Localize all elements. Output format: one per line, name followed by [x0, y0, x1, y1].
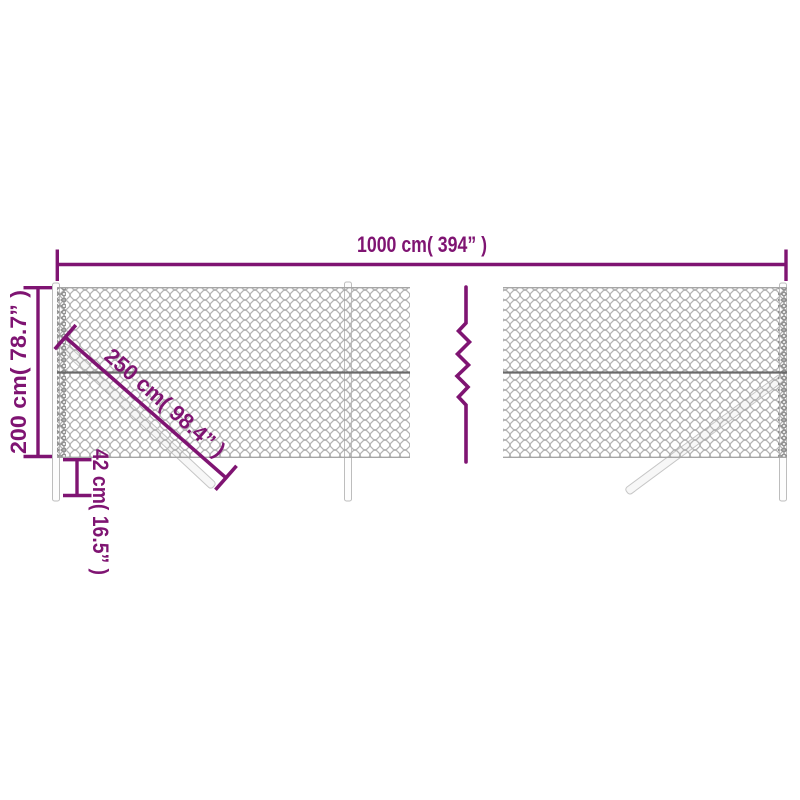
total-width-label: 1000 cm( 394” ) [357, 232, 487, 257]
fence-height-label: 200 cm( 78.7” ) [6, 290, 31, 454]
fence-diagram: 1000 cm( 394” ) 200 cm( 78.7” ) 250 cm( … [0, 0, 800, 800]
product-diagram-canvas: 1000 cm( 394” ) 200 cm( 78.7” ) 250 cm( … [0, 0, 800, 800]
break-mark [457, 287, 470, 462]
post-depth-label: 42 cm( 16.5” ) [88, 449, 113, 575]
